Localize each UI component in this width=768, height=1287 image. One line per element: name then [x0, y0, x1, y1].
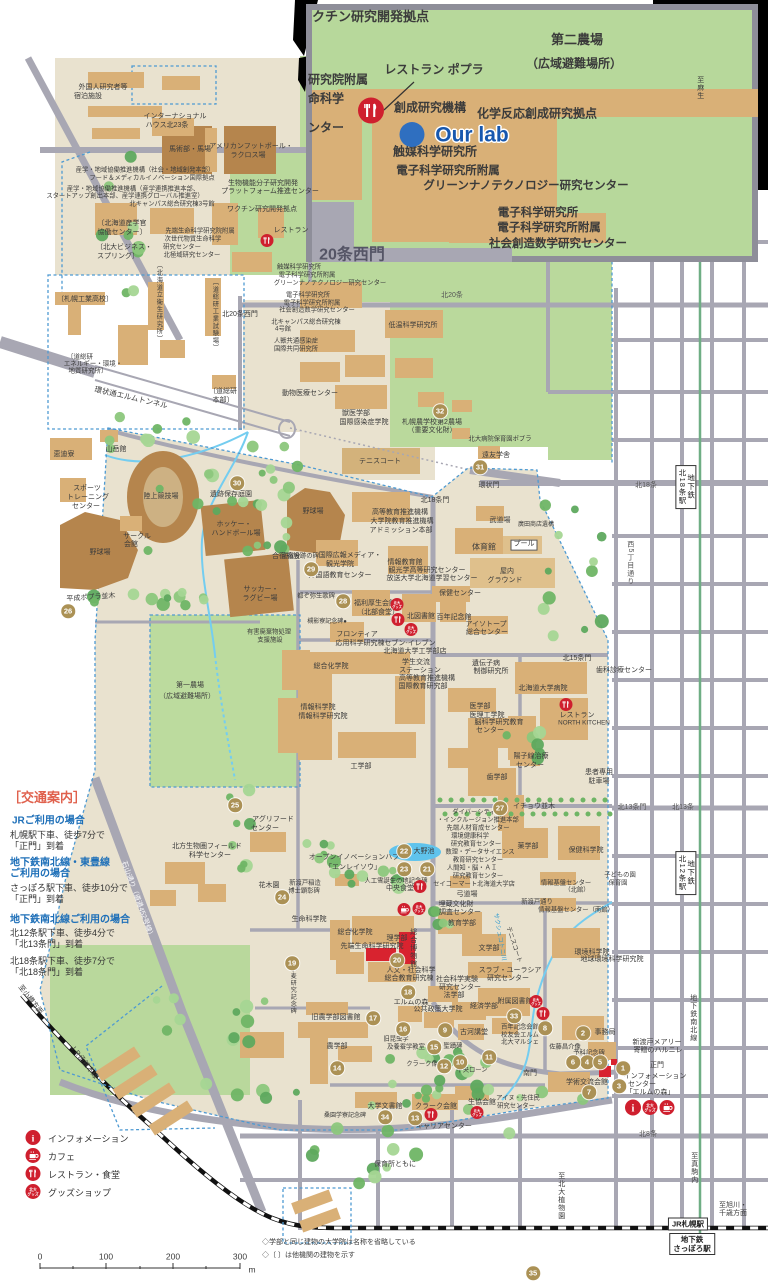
map-label: 高等教育推進機構: [399, 675, 455, 683]
map-label: 至北大植物園: [557, 1172, 565, 1220]
map-label: 総合教育研究棟: [385, 975, 434, 983]
map-number-marker: 30: [230, 476, 244, 490]
map-label: 地下鉄南北線ご利用の場合: [10, 916, 130, 927]
map-label: 大野池: [414, 848, 435, 856]
map-label: 馬術部・馬場: [169, 146, 211, 154]
map-label: 駐車場: [589, 778, 610, 786]
map-label: 桑園学寮記念碑: [324, 1113, 366, 1119]
map-label: 外国人研究者等: [79, 84, 128, 92]
map-number-marker: 1: [616, 1061, 630, 1075]
svg-text:グッズ: グッズ: [472, 1112, 482, 1117]
svg-text:グッズ: グッズ: [414, 908, 424, 913]
map-number-marker: 19: [285, 956, 299, 970]
cafe-icon: [398, 903, 411, 921]
map-label: 総合センター: [466, 629, 508, 637]
svg-text:i: i: [632, 1104, 635, 1115]
map-label: 及養蚕学教室: [387, 1045, 425, 1052]
svg-text:北大: 北大: [416, 904, 423, 909]
map-label: 研究センター: [439, 984, 481, 992]
map-label: 公共政策大学院: [414, 1006, 463, 1014]
map-label: 南門: [523, 1070, 537, 1078]
map-number-marker: 28: [336, 594, 350, 608]
map-label: 〔北大ビジネス・: [96, 244, 152, 252]
map-label: 地下鉄南北線: [689, 994, 697, 1042]
map-number-marker: 23: [397, 862, 411, 876]
goods-shop-icon: 北大グッズ: [471, 1106, 484, 1124]
legend-item-label: カフェ: [48, 1153, 75, 1163]
map-label: スポーツ: [73, 485, 101, 493]
restaurant-icon: [425, 1108, 438, 1126]
map-label: スラブ・ユーラシア: [479, 967, 542, 975]
svg-text:北大: 北大: [474, 1108, 481, 1113]
map-label: （北館）: [564, 888, 589, 895]
information-icon: i: [625, 1100, 641, 1121]
map-label: 新渡戸稲造: [289, 881, 320, 888]
map-label: ステーション: [399, 667, 441, 675]
map-label: セブン-イレブン: [384, 640, 435, 648]
map-label: ・インクルージョン推進本部: [437, 818, 519, 825]
svg-text:グッズ: グッズ: [531, 1001, 541, 1006]
map-label: 電子科学研究所: [286, 293, 330, 300]
map-label: 調査センター: [439, 909, 481, 917]
map-label: 野球場: [303, 508, 324, 516]
restaurant-icon: [392, 613, 405, 631]
map-label: 「正門」到着: [10, 842, 64, 852]
goods-shop-icon: 北大グッズ: [643, 1100, 658, 1120]
map-label: アイソトープ: [465, 621, 506, 629]
restaurant-icon: [560, 698, 573, 716]
map-label: 北図書館: [407, 613, 435, 621]
svg-text:i: i: [32, 1133, 35, 1144]
legend-item-label: グッズショップ: [48, 1189, 111, 1199]
our-lab-dot-icon: [400, 122, 425, 152]
map-label: 武道場: [490, 517, 511, 525]
map-label: 情報科学院: [301, 704, 336, 712]
map-label: NORTH KITCHEN: [558, 721, 610, 728]
cafe-icon: [660, 1100, 675, 1120]
restaurant-icon: [261, 234, 274, 252]
map-label: 新渡戸通り: [521, 900, 552, 907]
map-label: 「北13条門」到着: [10, 940, 83, 950]
map-label: 研究センター: [487, 975, 529, 983]
map-label: ハンドボール場: [212, 530, 261, 538]
map-label: 第一農場: [176, 682, 204, 690]
map-label: 患者専用: [585, 769, 613, 777]
map-label: インターナショナル: [144, 113, 207, 121]
inset-label: 命科学: [308, 93, 344, 106]
map-label: 先端生命科学研究院附属: [165, 229, 234, 236]
map-number-marker: 32: [433, 404, 447, 418]
map-label: 国際共同研究所: [274, 347, 318, 354]
map-label: 「エンレイソウ」: [325, 864, 381, 872]
map-label: ラクロス場: [231, 152, 266, 160]
scale-bar: [40, 1263, 240, 1269]
map-label: ホッケー・: [217, 521, 252, 529]
map-number-marker: 29: [304, 562, 318, 576]
map-label: 環状門: [479, 482, 500, 490]
restaurant-icon: [358, 98, 384, 129]
map-label: 子どもの園: [604, 873, 635, 880]
map-label: ワクチン研究開発拠点: [227, 206, 297, 214]
map-label: 北13条: [672, 804, 694, 812]
restaurant-icon: [537, 1007, 550, 1025]
map-label: 恵迪寮: [54, 451, 75, 459]
map-label: 社会科学実験: [436, 976, 478, 984]
map-label: 至真駒内: [690, 1152, 698, 1184]
map-label: サッカー・: [244, 586, 279, 594]
map-label: 正門: [650, 1062, 664, 1070]
map-label: 北大病院保育園ポプラ: [469, 437, 532, 444]
map-label: 北12条駅下車、徒歩4分で: [10, 929, 115, 939]
svg-text:北大: 北大: [394, 600, 401, 605]
map-label: JRご利用の場合: [12, 817, 85, 828]
inset-label: 創成研究機構: [394, 102, 466, 115]
map-label: 協働センター〕: [98, 229, 147, 237]
map-number-marker: 3: [612, 1079, 626, 1093]
map-label: 脳科学研究教育: [475, 719, 524, 727]
map-label: 研究教育センター: [453, 874, 503, 881]
map-label: 北15条門: [563, 655, 592, 663]
map-label: 都ぞ弥生歌碑: [297, 594, 335, 601]
map-label: 至旭川・: [719, 1202, 747, 1210]
map-label: 大学院教育推進機構: [371, 518, 434, 526]
legend-item-label: レストラン・食堂: [48, 1171, 120, 1181]
map-label: 弓道場: [457, 891, 478, 899]
map-label: ダイバーシティ: [452, 810, 495, 817]
svg-text:北大: 北大: [408, 625, 415, 630]
map-label: 教育学部: [448, 920, 476, 928]
map-label: 産学・地域協働推進機構（社会・地域創発本部）: [76, 168, 215, 175]
map-label: 農学部: [327, 1043, 348, 1051]
map-number-marker: 11: [482, 1050, 496, 1064]
map-label: 学生交流: [402, 659, 430, 667]
map-label: 北18条門: [421, 497, 450, 505]
map-label: 保育所ともに: [374, 1161, 416, 1169]
map-label: 有害廃棄物処理: [247, 630, 291, 637]
restaurant-icon: [26, 1166, 41, 1186]
map-label: 制御研究所: [474, 668, 509, 676]
map-label: クラーク像: [406, 1062, 437, 1069]
map-label: 〔札幌工業高校〕: [57, 296, 113, 304]
map-label: センター: [516, 762, 544, 770]
map-label: 〔道総研工業試験場〕: [211, 279, 218, 352]
map-label: 科学センター: [189, 852, 231, 860]
map-label: 放送大学北海道学習センター: [387, 575, 478, 583]
map-number-marker: 5: [593, 1055, 607, 1069]
map-label: 北18条駅下車、徒歩7分で: [10, 957, 115, 967]
svg-text:グッズ: グッズ: [406, 629, 416, 634]
map-label: （重要文化財）: [408, 427, 457, 435]
map-label: アグリフード: [252, 816, 294, 824]
map-label: トレーニング: [67, 494, 109, 502]
map-label: 総合化学院: [314, 663, 349, 671]
map-label: 生物機能分子研究開発: [228, 180, 298, 188]
map-label: 北キャンパス総合研究棟3号館: [129, 202, 214, 209]
map-label: 獣医学部: [342, 410, 370, 418]
map-label: 陸上競技場: [144, 493, 179, 501]
map-label: ハウス北23条: [146, 122, 189, 130]
map-label: 博士顕彰碑: [288, 889, 319, 896]
inset-label: （広域避難場所）: [526, 58, 622, 71]
map-label: 「正門」到着: [10, 895, 64, 905]
map-label: 北海道大学病院: [519, 685, 568, 693]
map-label: 体育館: [472, 544, 496, 553]
map-label: 経済学部: [470, 1003, 498, 1011]
map-label: オープンイノベーションハブ: [309, 854, 399, 862]
map-label: 寄宿舎跡の碑: [281, 554, 319, 561]
map-label: 遺伝子病: [472, 660, 500, 668]
map-label: 人獣共通感染症: [274, 339, 318, 346]
inset-label: 社会創造数学研究センター: [489, 238, 627, 250]
inset-label: 化学反応創成研究拠点: [477, 108, 597, 121]
map-label: 古河講堂: [460, 1029, 488, 1037]
map-number-marker: 25: [228, 798, 242, 812]
map-label: センター: [72, 503, 100, 511]
map-label: 地球環境科学研究院: [581, 956, 644, 964]
map-label: センター: [251, 825, 279, 833]
svg-text:北大: 北大: [29, 1187, 37, 1192]
map-label: 観光学院: [326, 561, 354, 569]
map-label: ［交通案内］: [8, 791, 86, 805]
map-label: 保育園: [609, 881, 628, 888]
map-label: 遠友学舎: [482, 452, 510, 460]
map-label: テニスコート: [359, 458, 401, 466]
map-label: プラットフォーム推進センター: [221, 188, 319, 196]
map-label: セイコーマート北海道大学店: [433, 882, 515, 889]
map-label: 保健センター: [439, 590, 481, 598]
map-number-marker: 4: [580, 1055, 594, 1069]
map-label: 研究センター: [497, 1104, 535, 1111]
map-label: 北海道大学工学部店: [384, 648, 447, 656]
map-label: 野球場: [90, 549, 111, 557]
map-number-marker: 24: [275, 890, 289, 904]
station-box: JR札幌駅: [668, 1218, 708, 1231]
map-label: イチョウ並木: [513, 803, 555, 811]
map-number-marker: 15: [427, 1040, 441, 1054]
map-label: 北8条: [639, 1131, 657, 1139]
map-number-marker: 20: [390, 953, 404, 967]
map-label: フロンティア: [336, 631, 378, 639]
map-label: 情報科学研究院: [299, 713, 348, 721]
inset-label: 20条西門: [319, 246, 385, 263]
map-label: 旧昆虫学: [383, 1037, 408, 1044]
map-number-marker: 21: [420, 862, 434, 876]
map-number-marker: 2: [576, 1026, 590, 1040]
map-label: 低温科学研究所: [389, 322, 438, 330]
map-label: 〔道総研: [209, 388, 237, 396]
map-number-marker: 31: [473, 460, 487, 474]
map-label: 小麦研究記念碑: [289, 966, 295, 1015]
cafe-icon: [26, 1148, 41, 1168]
map-label: 工学部: [351, 763, 372, 771]
svg-text:グッズ: グッズ: [644, 1108, 656, 1113]
map-label: 次世代物質生命科学: [165, 237, 222, 244]
map-label: 北方生物圏フィールド: [172, 843, 242, 851]
map-label: 北大マルシェ: [501, 1040, 539, 1047]
map-label: 研究センター: [163, 245, 201, 252]
map-label: 千歳方面: [719, 1210, 747, 1218]
map-label: 総合化学院: [338, 929, 373, 937]
map-label: スプリング〕: [97, 253, 139, 261]
inset-label: 第二農場: [551, 33, 603, 47]
map-label: 人文・社会科学: [387, 967, 436, 975]
map-number-marker: 34: [378, 1110, 392, 1124]
map-number-marker: 10: [453, 1055, 467, 1069]
map-label: 国際広報メディア・: [319, 552, 382, 560]
map-label: 附属図書館: [498, 998, 533, 1006]
map-label: 支援施設: [257, 638, 282, 645]
map-label: さっぽろ駅下車、徒歩10分で: [10, 884, 128, 894]
map-label: 医学部: [470, 703, 491, 711]
svg-text:北大: 北大: [646, 1103, 654, 1108]
map-label: 本部〕: [213, 397, 234, 405]
map-label: ラグビー場: [243, 595, 278, 603]
map-label: 北18条: [635, 482, 657, 490]
map-number-marker: 9: [438, 1023, 452, 1037]
map-label: 〔北海道立衛生研究所〕: [155, 262, 162, 342]
map-label: 廣田商店遺構: [518, 522, 554, 528]
map-label: 新渡戸メアリー: [633, 1039, 682, 1047]
map-label: 北20条西門: [222, 311, 258, 319]
map-label: 聖蹟碑: [444, 1044, 463, 1051]
map-label: 300: [233, 1252, 247, 1261]
map-label: レストラン: [274, 227, 309, 235]
map-label: 研究教育センター: [451, 842, 501, 849]
map-number-marker: 14: [330, 1061, 344, 1075]
map-label: 至麻生: [696, 76, 704, 100]
map-label: 屋内: [500, 568, 514, 576]
map-label: 事務局: [595, 1029, 616, 1037]
map-label: ご利用の場合: [10, 870, 70, 881]
map-label: 4号館: [275, 327, 291, 334]
map-label: エネルギー・環境・: [64, 360, 123, 367]
map-label: 遺跡保存庭園: [210, 491, 252, 499]
inset-label: グリーンナノテクノロジー研究センター: [423, 180, 628, 192]
map-label: 薬学部: [518, 843, 539, 851]
inset-label: 電子科学研究所附属: [396, 165, 500, 177]
inset-label: ンター: [308, 122, 344, 135]
svg-text:グッズ: グッズ: [27, 1192, 39, 1197]
inset-label: 電子科学研究所: [498, 207, 579, 219]
map-footnote: ◇〔 〕は他機関の建物を示す: [262, 1252, 355, 1260]
map-label: 旧農学部図書館: [312, 1014, 361, 1022]
map-label: 北13条門: [618, 804, 647, 812]
map-number-marker: 6: [566, 1055, 580, 1069]
map-number-marker: 33: [507, 1009, 521, 1023]
map-label: 〔北海道産学官: [98, 220, 147, 228]
map-label: 情報基盤センター（南館）: [538, 908, 614, 915]
restaurant-icon: [414, 880, 427, 898]
map-number-marker: 22: [397, 844, 411, 858]
map-number-marker: 12: [437, 1059, 451, 1073]
map-label: 国際感染症学院: [340, 419, 389, 427]
map-label: （広域避難場所）: [159, 693, 215, 701]
svg-text:北大: 北大: [533, 997, 540, 1002]
map-label: 寄贈のハルニレ: [634, 1047, 683, 1055]
map-label: 応用科学研究棟: [336, 640, 385, 648]
inset-label: クチン研究開発拠点: [312, 10, 429, 24]
svg-text:グッズ: グッズ: [392, 604, 402, 609]
map-label: アドミッション本部: [370, 527, 433, 535]
map-label: 西5丁目通り: [626, 541, 634, 586]
map-label: フード＆メディカルイノベーション国際拠点: [89, 176, 214, 183]
map-footnote: ◇学部と同じ建物の大学院は名称を省略している: [262, 1239, 416, 1247]
station-box: 地下鉄 北18条駅: [675, 465, 696, 509]
map-label: 触媒科学研究所: [277, 265, 321, 272]
map-label: 埋蔵文化財: [439, 901, 474, 909]
map-label: 教育研究センター: [453, 858, 503, 865]
map-label: 札幌駅下車、徒歩7分で: [10, 831, 105, 841]
map-label: センター: [628, 1081, 656, 1089]
map-label: 槻影寮記念碑●: [307, 619, 347, 625]
map-number-marker: 26: [61, 604, 75, 618]
map-number-marker: 7: [582, 1085, 596, 1099]
goods-shop-icon: 北大グッズ: [413, 902, 426, 920]
map-label: 環境健康科学: [451, 834, 489, 841]
map-label: 北極域研究センター: [164, 253, 221, 260]
map-number-marker: 27: [493, 801, 507, 815]
map-label: 先端人材育成センター: [447, 826, 510, 833]
map-label: グリーンナノテクノロジー研究センター: [274, 281, 386, 288]
map-label: 「北18条門」到着: [10, 968, 83, 978]
map-label: 会館: [124, 541, 138, 549]
map-label: 数理・データサイエンス: [445, 850, 514, 857]
map-label: 高等教育推進機構: [372, 509, 428, 517]
goods-shop-icon: 北大グッズ: [26, 1184, 41, 1204]
map-label: 中央食堂: [386, 885, 414, 893]
information-icon: i: [26, 1130, 41, 1150]
map-label: 地質研究所〕: [69, 367, 108, 374]
map-label: 社会創造数学研究センター: [279, 308, 355, 315]
map-label: 山岳館: [106, 446, 127, 454]
map-label: 歯科診療センター: [596, 667, 652, 675]
map-label: 人間知・脳・ＡＩ: [447, 866, 497, 873]
map-label: 宿泊施設: [74, 93, 102, 101]
station-box: 地下鉄 北12条駅: [675, 851, 696, 895]
map-number-marker: 18: [401, 985, 415, 999]
map-label: グラウンド: [488, 577, 523, 585]
map-label: 〔道総研: [67, 353, 93, 360]
map-label: 外国語教育センター: [309, 572, 372, 580]
map-label: 0: [38, 1252, 43, 1261]
inset-label: 研究院附属: [308, 74, 368, 87]
map-label: 100: [99, 1252, 113, 1261]
map-label: 法学部: [444, 992, 465, 1000]
map-number-marker: 17: [366, 1011, 380, 1025]
station-box: 地下鉄 さっぽろ駅: [669, 1233, 715, 1255]
map-label: m: [248, 1265, 255, 1274]
map-label: インフォメーション: [624, 1073, 687, 1081]
map-number-marker: 35: [526, 1266, 540, 1280]
map-label: 文学部: [479, 945, 500, 953]
map-label: 理学部: [387, 935, 408, 943]
map-label: 電子科学研究所附属: [279, 273, 336, 280]
map-label: 総合博物館: [409, 928, 417, 968]
map-label: 陽子線治療: [514, 753, 549, 761]
map-label: プール: [511, 540, 538, 551]
map-label: 北20条: [441, 292, 463, 300]
map-label: 花木園: [259, 882, 280, 890]
map-label: 歯学部: [487, 774, 508, 782]
map-label: 保健科学院: [569, 847, 604, 855]
map-label: アイヌ・先住民: [496, 1096, 540, 1103]
map-label: センター: [476, 727, 504, 735]
inset-label: レストラン ポプラ: [384, 64, 483, 77]
map-label: 生命科学院: [292, 916, 327, 924]
legend-item-label: インフォメーション: [48, 1135, 129, 1145]
map-label: 百年記念会館: [501, 1025, 539, 1032]
map-label: 動物医療センター: [282, 390, 338, 398]
